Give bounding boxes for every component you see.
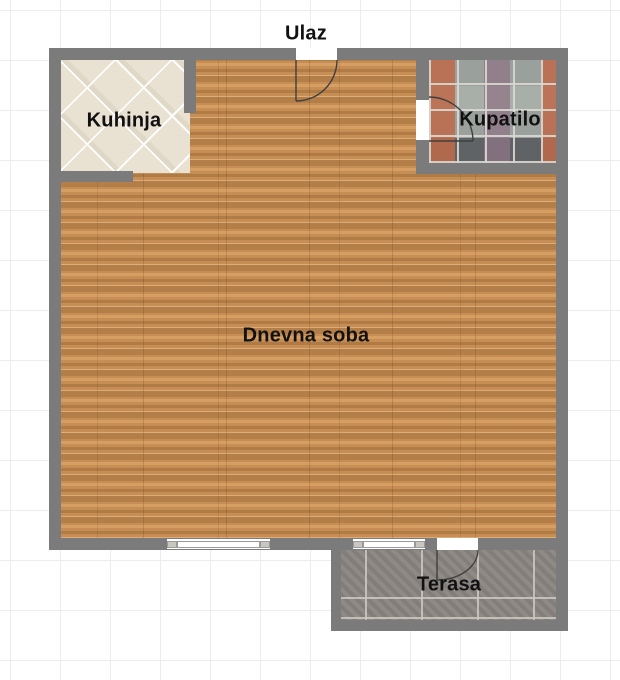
window-glass [363, 541, 415, 548]
wall-bathroom-bottom [416, 163, 568, 174]
window-frame-cap [415, 541, 425, 548]
window-frame-cap [353, 541, 363, 548]
bathroom-door-opening [416, 100, 429, 140]
window-frame-cap [260, 541, 270, 548]
living-room-window-left [167, 539, 270, 549]
wall-kitchen-bottom [49, 171, 133, 182]
living-room-label: Dnevna soba [243, 325, 370, 348]
terrace-door-opening [437, 538, 478, 550]
entrance-label: Ulaz [285, 23, 327, 46]
bathroom-label: Kupatilo [459, 109, 541, 132]
window-frame-cap [167, 541, 177, 548]
wall-bottom-living-room [49, 538, 568, 550]
wall-kitchen-right [184, 48, 196, 113]
window-glass [177, 541, 260, 548]
kitchen-label: Kuhinja [87, 110, 162, 133]
terrace-label: Terasa [417, 574, 481, 597]
floor-plan: Ulaz Kuhinja Kupatilo Dnevna soba Terasa [0, 0, 620, 680]
living-room-window-right [353, 539, 425, 549]
wall-terrace-bottom [331, 620, 568, 631]
entrance-door-opening [296, 48, 337, 60]
wall-left [49, 48, 61, 550]
wall-terrace-left [331, 538, 341, 631]
